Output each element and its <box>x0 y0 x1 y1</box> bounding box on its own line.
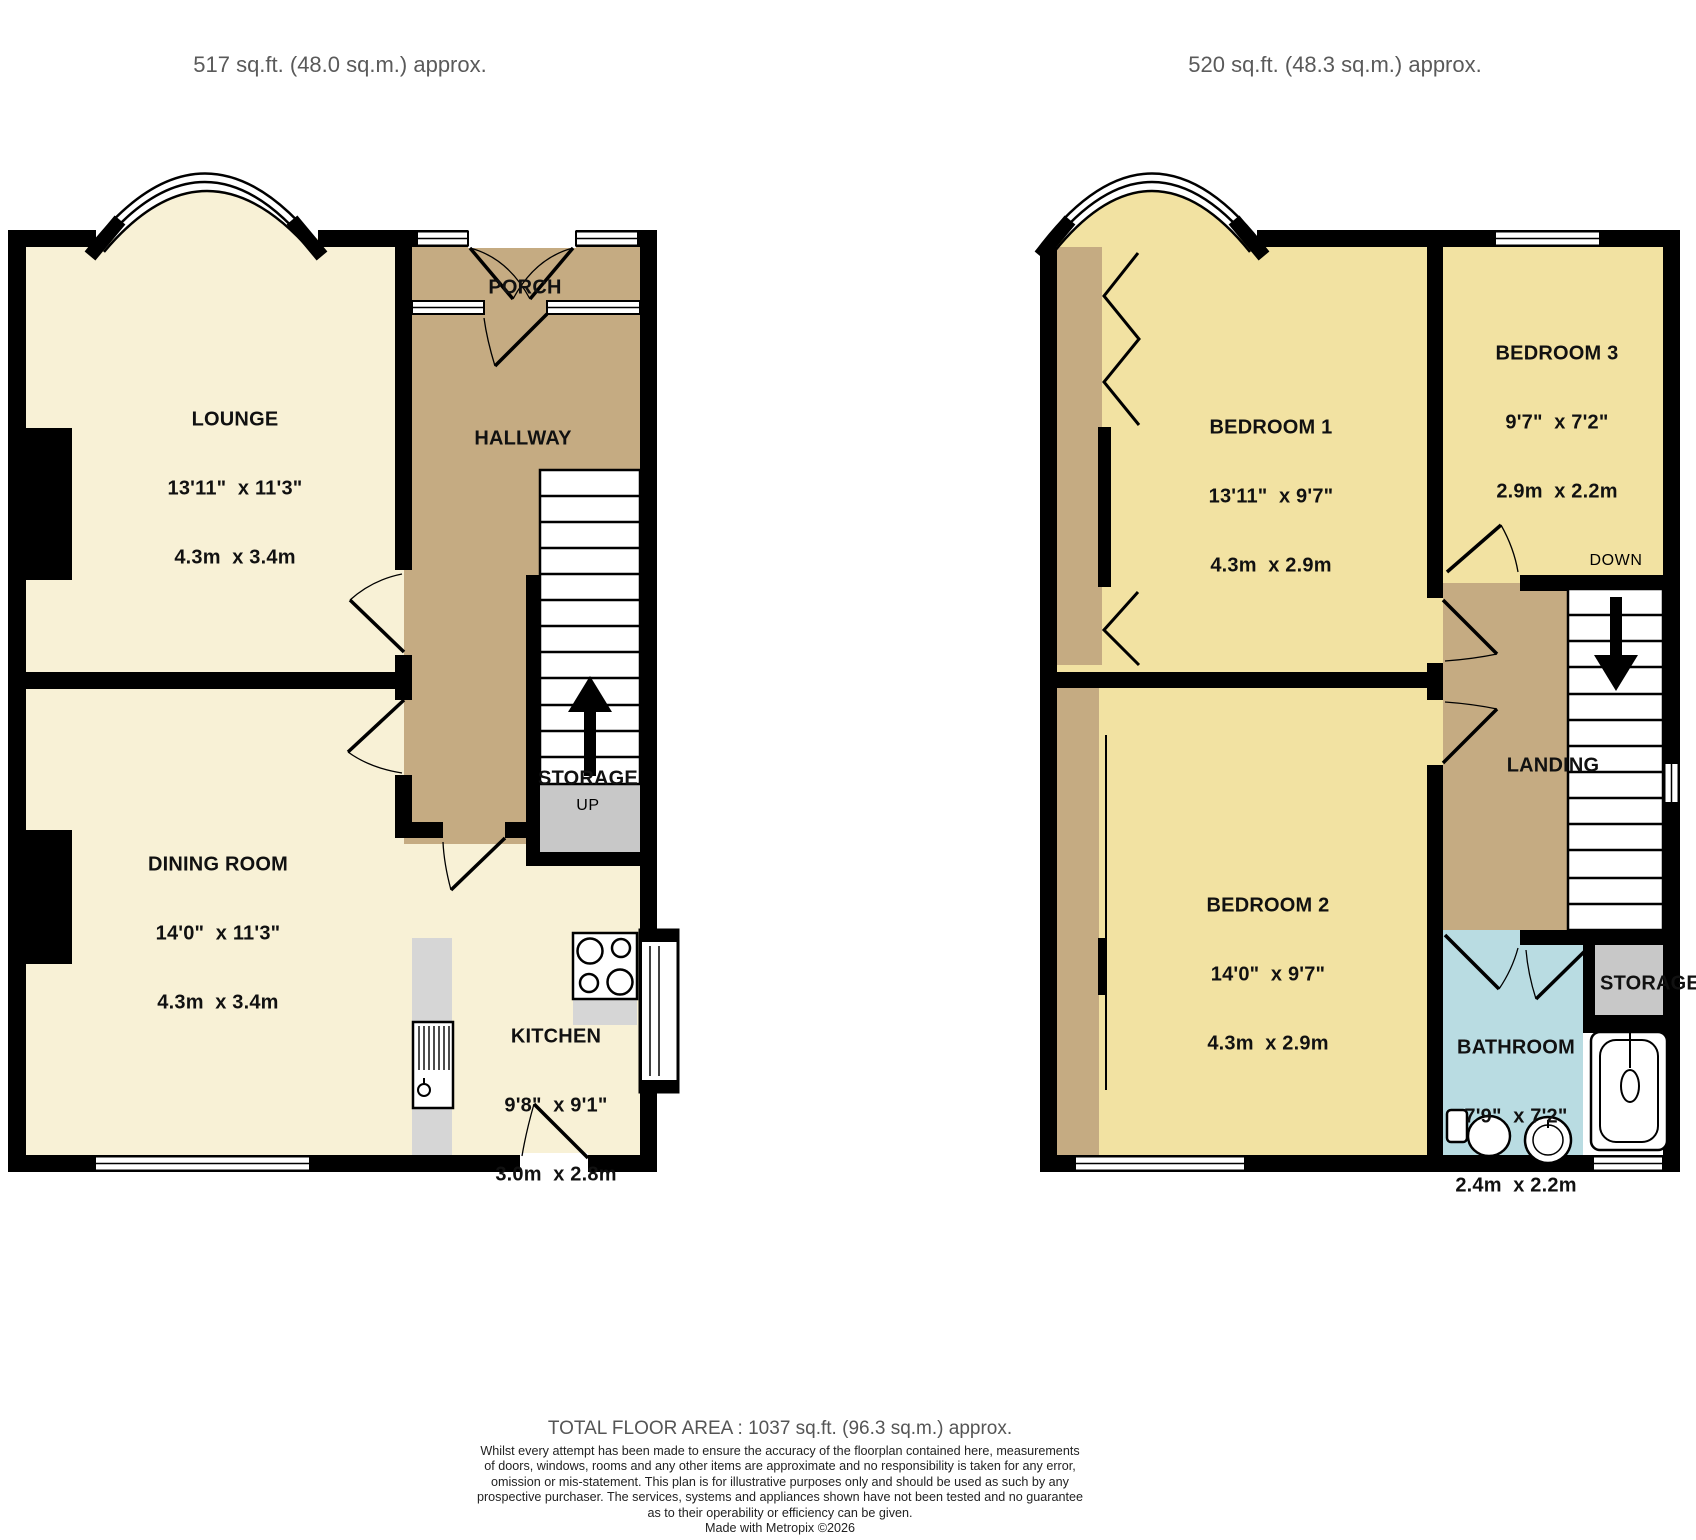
bathtub-icon <box>1591 1025 1667 1150</box>
bedroom1-imperial: 13'11" x 9'7" <box>1209 486 1334 509</box>
kitchen-name: KITCHEN <box>495 1026 616 1049</box>
first-storage-label: STORAGE <box>1600 973 1696 996</box>
bedroom2-wardrobe <box>1057 688 1099 1155</box>
bedroom2-imperial: 14'0" x 9'7" <box>1207 964 1330 987</box>
ground-floor-area: 517 sq.ft. (48.0 sq.m.) approx. <box>193 52 486 78</box>
disclaimer-line: of doors, windows, rooms and any other i… <box>477 1459 1083 1474</box>
bedroom2-label: BEDROOM 2 14'0" x 9'7" 4.3m x 2.9m <box>1207 849 1330 1102</box>
disclaimer-line: as to their operability or efficiency ca… <box>477 1506 1083 1521</box>
dining-room-metric: 4.3m x 3.4m <box>148 992 288 1015</box>
disclaimer-line: Whilst every attempt has been made to en… <box>477 1444 1083 1459</box>
first-floor-area: 520 sq.ft. (48.3 sq.m.) approx. <box>1188 52 1481 78</box>
landing-label: LANDING <box>1507 755 1600 778</box>
total-floor-area: TOTAL FLOOR AREA : 1037 sq.ft. (96.3 sq.… <box>548 1418 1012 1440</box>
chimney-breast-lounge <box>26 428 72 580</box>
bedroom1-wardrobe <box>1057 247 1102 665</box>
lounge-name: LOUNGE <box>168 409 303 432</box>
kitchen-bay-window <box>640 930 678 1092</box>
lounge-label: LOUNGE 13'11" x 11'3" 4.3m x 3.4m <box>168 363 303 616</box>
porch-label: PORCH <box>488 277 561 300</box>
disclaimer: Whilst every attempt has been made to en… <box>477 1444 1083 1536</box>
floorplan-canvas: GROUND FLOOR 517 sq.ft. (48.0 sq.m.) app… <box>0 0 1696 1540</box>
bedroom1-label: BEDROOM 1 13'11" x 9'7" 4.3m x 2.9m <box>1209 371 1334 624</box>
bedroom3-label: BEDROOM 3 9'7" x 7'2" 2.9m x 2.2m <box>1496 297 1619 550</box>
chimney-breast-dining <box>26 830 72 964</box>
ground-floor-header: GROUND FLOOR 517 sq.ft. (48.0 sq.m.) app… <box>193 0 486 130</box>
bedroom2-metric: 4.3m x 2.9m <box>1207 1033 1330 1056</box>
sink-icon <box>413 1022 453 1108</box>
kitchen-imperial: 9'8" x 9'1" <box>495 1095 616 1118</box>
metropix-credit: Made with Metropix ©2026 <box>477 1521 1083 1536</box>
lounge-metric: 4.3m x 3.4m <box>168 547 303 570</box>
bathroom-label: BATHROOM 7'9" x 7'2" 2.4m x 2.2m <box>1455 991 1576 1244</box>
dining-room-name: DINING ROOM <box>148 854 288 877</box>
ground-storage-label: STORAGE <box>538 768 638 791</box>
ground-stairs-up <box>540 470 640 784</box>
kitchen-metric: 3.0m x 2.8m <box>495 1164 616 1187</box>
hallway-label: HALLWAY <box>474 428 571 451</box>
floorplan-graphic <box>0 0 1696 1540</box>
kitchen-label: KITCHEN 9'8" x 9'1" 3.0m x 2.8m <box>495 980 616 1233</box>
dining-room-imperial: 14'0" x 11'3" <box>148 923 288 946</box>
disclaimer-line: omission or mis-statement. This plan is … <box>477 1475 1083 1490</box>
disclaimer-line: prospective purchaser. The services, sys… <box>477 1490 1083 1505</box>
stairs-up-label: UP <box>576 797 599 815</box>
wardrobe-divider <box>1098 427 1111 587</box>
bathroom-name: BATHROOM <box>1455 1037 1576 1060</box>
bedroom3-metric: 2.9m x 2.2m <box>1496 481 1619 504</box>
bedroom3-imperial: 9'7" x 7'2" <box>1496 412 1619 435</box>
bathroom-imperial: 7'9" x 7'2" <box>1455 1106 1576 1129</box>
dining-room-label: DINING ROOM 14'0" x 11'3" 4.3m x 3.4m <box>148 808 288 1061</box>
bedroom2-name: BEDROOM 2 <box>1207 895 1330 918</box>
bathroom-metric: 2.4m x 2.2m <box>1455 1175 1576 1198</box>
bedroom3-name: BEDROOM 3 <box>1496 343 1619 366</box>
bedroom1-metric: 4.3m x 2.9m <box>1209 555 1334 578</box>
first-floor-header: 1ST FLOOR 520 sq.ft. (48.3 sq.m.) approx… <box>1188 0 1481 130</box>
lounge-imperial: 13'11" x 11'3" <box>168 478 303 501</box>
bedroom1-name: BEDROOM 1 <box>1209 417 1334 440</box>
stairs-down-label: DOWN <box>1589 552 1642 570</box>
